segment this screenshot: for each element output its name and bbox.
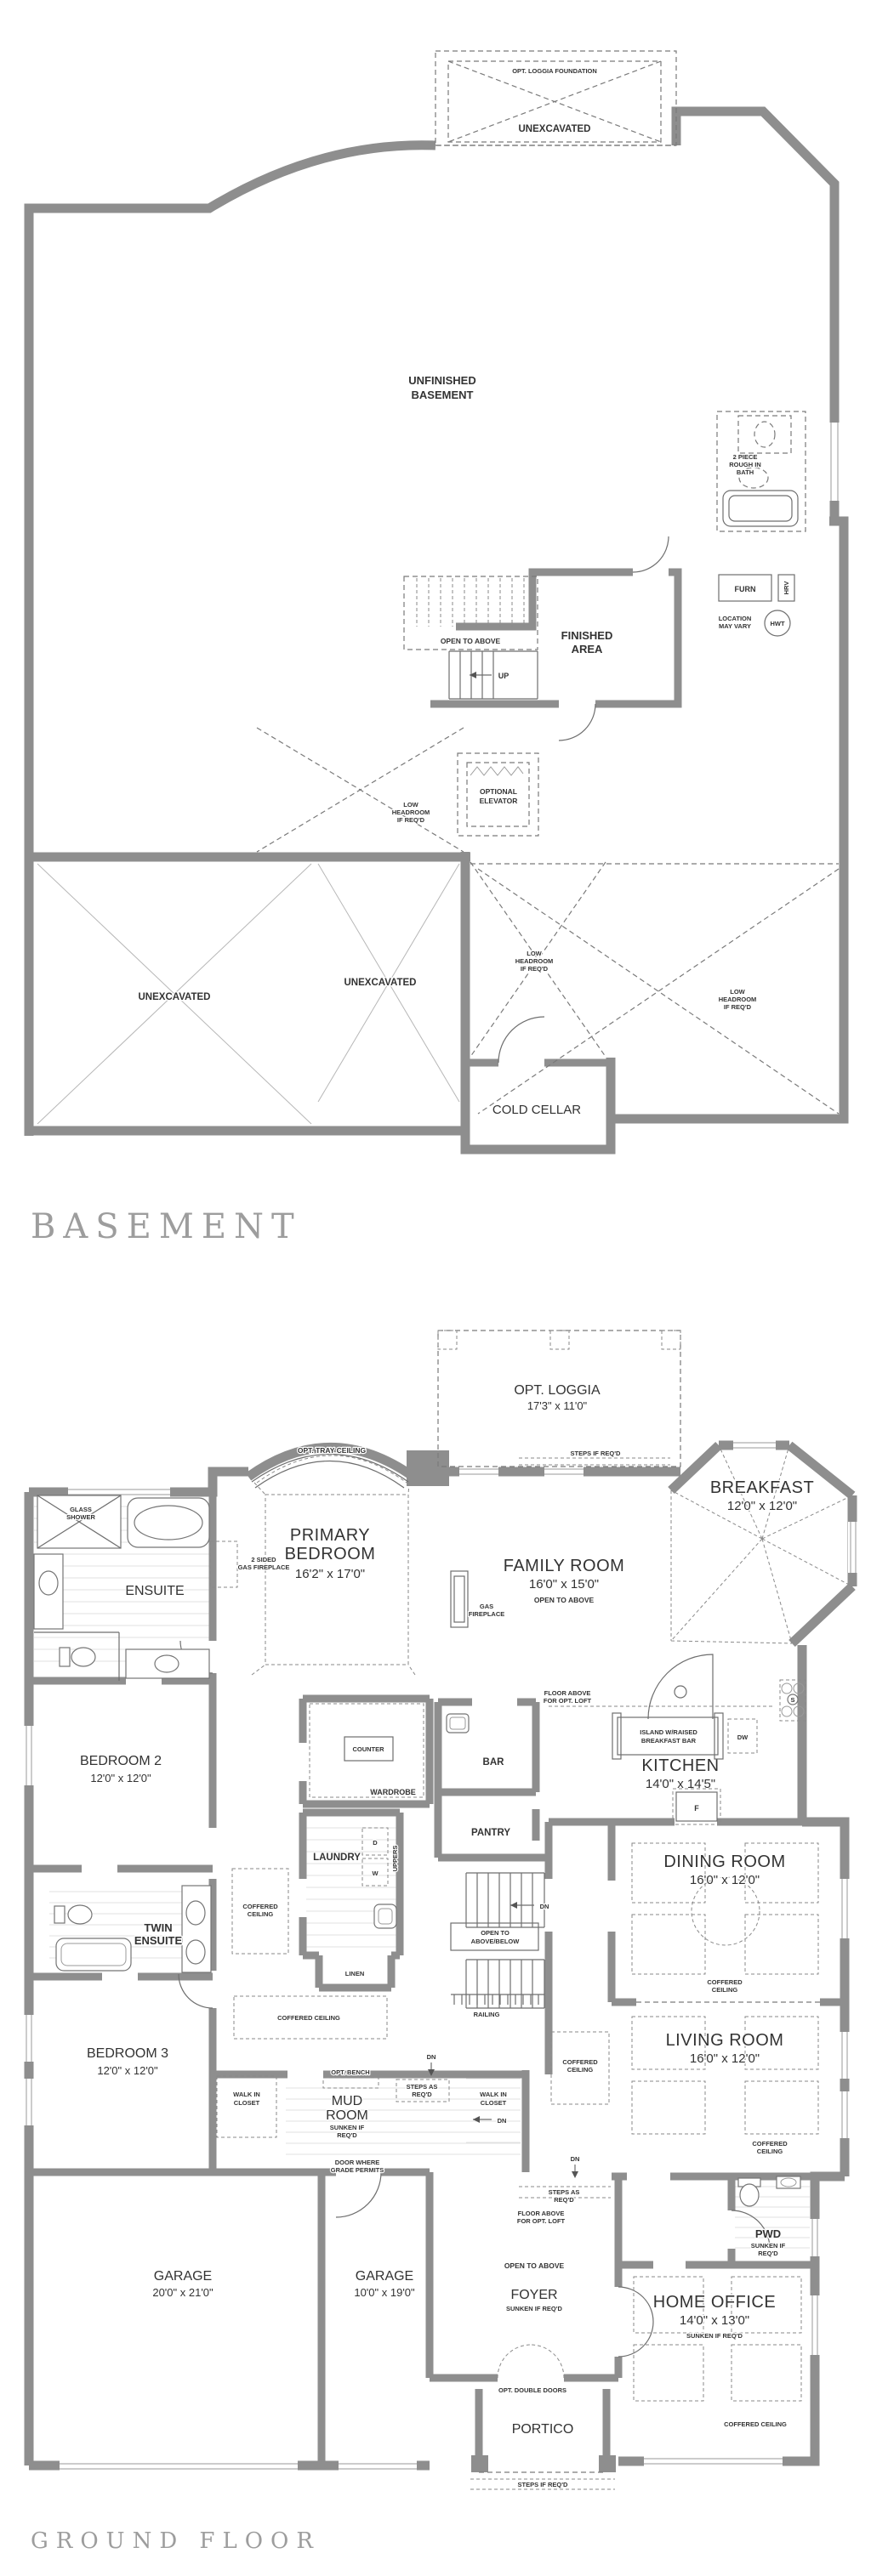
- gf-dining-room: DINING ROOM 16'0" x 12'0" COFFERED CEILI…: [632, 1843, 818, 1994]
- svg-text:CLOSET: CLOSET: [481, 2099, 507, 2107]
- basement-cold-cellar: COLD CELLAR: [492, 1017, 581, 1117]
- basement-plan: OPT. LOGGIA FOUNDATION UNEXCAVATED UNFIN…: [0, 0, 871, 1284]
- label-family-room: FAMILY ROOM: [504, 1557, 625, 1575]
- svg-text:COFFERED: COFFERED: [707, 1978, 743, 1986]
- svg-text:10'0" x 19'0": 10'0" x 19'0": [354, 2286, 415, 2299]
- svg-text:ENSUITE: ENSUITE: [134, 1934, 183, 1947]
- label-pantry: PANTRY: [471, 1828, 510, 1838]
- basement-mechanical: FURN HRV HWT LOCATION MAY VARY: [719, 575, 794, 636]
- svg-text:OPEN TO: OPEN TO: [481, 1929, 510, 1937]
- label-loggia-foundation: OPT. LOGGIA FOUNDATION: [512, 67, 597, 75]
- svg-text:STEPS AS: STEPS AS: [407, 2083, 438, 2091]
- svg-text:WALK IN: WALK IN: [480, 2091, 507, 2098]
- svg-text:GAS FIREPLACE: GAS FIREPLACE: [238, 1563, 290, 1571]
- label-dn: DN: [540, 1903, 549, 1910]
- svg-text:ROOM: ROOM: [326, 2108, 368, 2123]
- svg-text:W: W: [372, 1870, 379, 1877]
- gf-bar-pantry: BAR PANTRY: [447, 1714, 510, 1838]
- label-foyer: FOYER: [510, 2288, 557, 2302]
- gf-twin-ensuite: TWIN ENSUITE: [54, 1886, 211, 1972]
- label-wardrobe: WARDROBE: [370, 1788, 416, 1796]
- label-tray-ceiling: OPT. TRAY CEILING: [298, 1446, 367, 1455]
- svg-text:ROUGH IN: ROUGH IN: [729, 461, 761, 468]
- label-open-to-above: OPEN TO ABOVE: [441, 637, 501, 645]
- gf-loggia: OPT. LOGGIA 17'3" x 11'0" STEPS IF REQ'D: [438, 1331, 680, 1467]
- svg-text:ELEVATOR: ELEVATOR: [480, 797, 518, 805]
- basement-stairs: OPEN TO ABOVE UP: [404, 576, 538, 699]
- label-bar: BAR: [483, 1757, 505, 1767]
- svg-text:FLOOR ABOVE: FLOOR ABOVE: [518, 2210, 565, 2217]
- svg-text:IF REQ'D: IF REQ'D: [397, 816, 425, 824]
- svg-text:SUNKEN IF: SUNKEN IF: [330, 2124, 365, 2131]
- label-dishwasher: DW: [737, 1733, 749, 1741]
- svg-text:ABOVE/BELOW: ABOVE/BELOW: [471, 1938, 521, 1945]
- ground-floor-title: GROUND FLOOR: [31, 2528, 321, 2554]
- svg-text:FOR OPT. LOFT: FOR OPT. LOFT: [544, 1697, 592, 1705]
- svg-text:REQ'D: REQ'D: [412, 2091, 432, 2098]
- gf-home-office: HOME OFFICE 14'0" x 13'0" SUNKEN IF REQ'…: [634, 2277, 801, 2428]
- gf-hall-coffered: COFFERED CEILING COFFERED CEILING COFFER…: [232, 1869, 609, 2104]
- svg-text:GRADE PERMITS: GRADE PERMITS: [331, 2166, 384, 2174]
- svg-text:TWIN: TWIN: [144, 1921, 172, 1934]
- label-fridge: F: [694, 1804, 699, 1813]
- svg-text:REQ'D: REQ'D: [337, 2131, 357, 2139]
- svg-text:12'0" x 12'0": 12'0" x 12'0": [727, 1499, 797, 1513]
- svg-text:16'0" x 15'0": 16'0" x 15'0": [529, 1577, 599, 1592]
- basement-rough-in-bath: 2 PIECE ROUGH IN BATH: [717, 411, 806, 531]
- svg-text:UPPERS: UPPERS: [391, 1846, 399, 1872]
- gf-foyer: OPEN TO ABOVE FOYER SUNKEN IF REQ'D DN S…: [504, 2155, 611, 2312]
- label-furnace: FURN: [735, 585, 756, 593]
- svg-text:16'2" x 17'0": 16'2" x 17'0": [295, 1567, 365, 1581]
- svg-text:GAS: GAS: [480, 1603, 493, 1610]
- svg-text:HEADROOM: HEADROOM: [719, 996, 757, 1003]
- label-opt-loggia: OPT. LOGGIA: [514, 1383, 601, 1398]
- svg-text:SUNKEN IF REQ'D: SUNKEN IF REQ'D: [506, 2305, 563, 2312]
- svg-text:FINISHED: FINISHED: [561, 629, 613, 642]
- svg-text:AREA: AREA: [572, 643, 603, 655]
- svg-text:COFFERED CEILING: COFFERED CEILING: [277, 2014, 340, 2022]
- svg-text:OPEN TO ABOVE: OPEN TO ABOVE: [504, 2261, 565, 2270]
- svg-text:2 PIECE: 2 PIECE: [733, 453, 758, 461]
- basement-elevator: OPTIONAL ELEVATOR: [458, 753, 538, 836]
- label-portico: PORTICO: [512, 2422, 574, 2437]
- label-opt-double-doors: OPT. DOUBLE DOORS: [498, 2386, 566, 2394]
- svg-text:PRIMARY: PRIMARY: [290, 1526, 370, 1545]
- svg-text:FLOOR ABOVE: FLOOR ABOVE: [544, 1689, 591, 1697]
- svg-text:MUD: MUD: [332, 2094, 362, 2108]
- label-opt-bench: OPT. BENCH: [331, 2068, 369, 2076]
- label-garage2: GARAGE: [356, 2269, 413, 2284]
- label-cold-cellar: COLD CELLAR: [492, 1103, 581, 1117]
- label-stove: S: [790, 1696, 794, 1704]
- svg-text:GLASS: GLASS: [70, 1506, 92, 1513]
- svg-text:DN: DN: [427, 2053, 436, 2061]
- svg-text:BREAKFAST BAR: BREAKFAST BAR: [641, 1737, 697, 1745]
- svg-text:2 SIDED: 2 SIDED: [251, 1556, 276, 1563]
- gf-kitchen: KITCHEN 14'0" x 14'5" ISLAND W/RAISED BR…: [544, 1654, 806, 1824]
- basement-loggia-foundation: OPT. LOGGIA FOUNDATION UNEXCAVATED: [435, 51, 676, 145]
- svg-text:16'0" x 12'0": 16'0" x 12'0": [690, 1873, 760, 1887]
- gf-wardrobe: COUNTER WARDROBE: [310, 1704, 424, 1797]
- basement-unexcavated-garage: UNEXCAVATED UNEXCAVATED: [37, 864, 459, 1124]
- svg-text:COFFERED: COFFERED: [752, 2140, 788, 2148]
- label-dining: DINING ROOM: [663, 1853, 785, 1871]
- gf-portico: OPT. DOUBLE DOORS PORTICO STEPS IF REQ'D: [470, 2386, 615, 2489]
- svg-text:LOW: LOW: [403, 801, 418, 809]
- floorplan-sheet: OPT. LOGGIA FOUNDATION UNEXCAVATED UNFIN…: [0, 0, 871, 2576]
- svg-text:STEPS IF REQ'D: STEPS IF REQ'D: [518, 2481, 568, 2488]
- svg-text:BATH: BATH: [737, 468, 754, 476]
- svg-text:SUNKEN IF REQ'D: SUNKEN IF REQ'D: [686, 2332, 743, 2340]
- svg-text:WALK IN: WALK IN: [233, 2091, 260, 2098]
- svg-text:CLOSET: CLOSET: [234, 2099, 260, 2107]
- svg-text:REQ'D: REQ'D: [758, 2250, 778, 2257]
- gf-family-room: FAMILY ROOM 16'0" x 15'0" OPEN TO ABOVE …: [451, 1557, 624, 1627]
- svg-text:LOW: LOW: [527, 950, 542, 957]
- label-bedroom3: BEDROOM 3: [87, 2046, 168, 2061]
- svg-text:CEILING: CEILING: [248, 1910, 274, 1918]
- svg-text:DN: DN: [498, 2117, 507, 2125]
- gf-bedroom2: BEDROOM 2 12'0" x 12'0": [80, 1754, 162, 1784]
- label-laundry: LAUNDRY: [313, 1853, 361, 1863]
- svg-text:DOOR WHERE: DOOR WHERE: [335, 2159, 380, 2166]
- svg-text:UNEXCAVATED: UNEXCAVATED: [139, 992, 211, 1002]
- svg-text:COFFERED CEILING: COFFERED CEILING: [724, 2420, 787, 2428]
- svg-text:CEILING: CEILING: [757, 2148, 783, 2155]
- label-garage1: GARAGE: [154, 2269, 212, 2284]
- svg-text:UNFINISHED: UNFINISHED: [408, 374, 475, 387]
- gf-garages: GARAGE 20'0" x 21'0" GARAGE 10'0" x 19'0…: [152, 2269, 415, 2299]
- label-kitchen: KITCHEN: [641, 1756, 719, 1775]
- svg-text:STEPS IF REQ'D: STEPS IF REQ'D: [571, 1450, 621, 1457]
- basement-title: BASEMENT: [31, 1207, 302, 1246]
- svg-text:LOCATION: LOCATION: [719, 615, 752, 622]
- label-ensuite: ENSUITE: [125, 1584, 184, 1598]
- gf-bedroom3: BEDROOM 3 12'0" x 12'0": [87, 2046, 168, 2077]
- svg-text:CEILING: CEILING: [567, 2066, 594, 2074]
- svg-text:UNEXCAVATED: UNEXCAVATED: [344, 978, 417, 988]
- svg-text:HEADROOM: HEADROOM: [515, 957, 554, 965]
- svg-text:LOW: LOW: [730, 988, 745, 996]
- svg-text:OPTIONAL: OPTIONAL: [480, 787, 517, 796]
- gf-living-room: LIVING ROOM 16'0" x 12'0" COFFERED CEILI…: [632, 2017, 818, 2155]
- svg-text:COFFERED: COFFERED: [562, 2058, 598, 2066]
- svg-text:BASEMENT: BASEMENT: [412, 389, 474, 401]
- label-living: LIVING ROOM: [666, 2031, 784, 2050]
- gf-primary-bedroom: OPT. TRAY CEILING PRIMARY BEDROOM 16'2" …: [210, 1446, 415, 1675]
- svg-text:SUNKEN IF: SUNKEN IF: [751, 2242, 786, 2250]
- svg-text:CEILING: CEILING: [712, 1986, 738, 1994]
- basement-unfinished-label: UNFINISHED BASEMENT: [408, 374, 475, 401]
- svg-text:FIREPLACE: FIREPLACE: [469, 1610, 505, 1618]
- svg-text:17'3" x 11'0": 17'3" x 11'0": [527, 1399, 588, 1412]
- gf-stairs: OPEN TO ABOVE/BELOW DN RAILING: [451, 1873, 549, 2018]
- svg-text:REQ'D: REQ'D: [554, 2196, 574, 2204]
- svg-text:BEDROOM: BEDROOM: [285, 1545, 376, 1563]
- label-pwd: PWD: [755, 2227, 781, 2240]
- svg-text:14'0" x 13'0": 14'0" x 13'0": [680, 2313, 749, 2328]
- label-counter: COUNTER: [352, 1745, 384, 1753]
- svg-text:ISLAND W/RAISED: ISLAND W/RAISED: [640, 1728, 697, 1736]
- basement-low-headroom-areas: LOW HEADROOM IF REQ'D LOW HEADROOM IF RE…: [257, 728, 839, 1114]
- svg-text:MAY VARY: MAY VARY: [719, 622, 751, 630]
- label-bedroom2: BEDROOM 2: [80, 1754, 162, 1768]
- label-breakfast: BREAKFAST: [710, 1478, 814, 1497]
- svg-text:IF REQ'D: IF REQ'D: [521, 965, 549, 973]
- svg-text:COFFERED: COFFERED: [242, 1903, 278, 1910]
- svg-text:STEPS AS: STEPS AS: [549, 2188, 580, 2196]
- svg-text:IF REQ'D: IF REQ'D: [724, 1003, 752, 1011]
- svg-text:HEADROOM: HEADROOM: [392, 809, 430, 816]
- label-up: UP: [498, 672, 510, 680]
- svg-text:D: D: [373, 1839, 378, 1847]
- label-railing: RAILING: [474, 2011, 500, 2018]
- svg-text:20'0" x 21'0": 20'0" x 21'0": [152, 2286, 213, 2299]
- gf-ensuite: GLASS SHOWER ENSUITE: [34, 1495, 209, 1681]
- svg-text:12'0" x 12'0": 12'0" x 12'0": [97, 2064, 158, 2077]
- label-unexcavated-top: UNEXCAVATED: [519, 124, 591, 134]
- label-home-office: HOME OFFICE: [653, 2293, 776, 2312]
- label-hwt: HWT: [770, 620, 784, 627]
- ground-floor-plan: OPT. LOGGIA 17'3" x 11'0" STEPS IF REQ'D…: [0, 1284, 871, 2576]
- label-linen: LINEN: [345, 1970, 365, 1977]
- svg-text:SHOWER: SHOWER: [66, 1513, 95, 1521]
- svg-text:16'0" x 12'0": 16'0" x 12'0": [690, 2051, 760, 2066]
- gf-laundry: LAUNDRY D W UPPERS LINEN: [313, 1828, 399, 1977]
- label-hrv: HRV: [783, 582, 790, 595]
- svg-text:OPEN TO ABOVE: OPEN TO ABOVE: [534, 1596, 595, 1604]
- svg-text:12'0" x 12'0": 12'0" x 12'0": [90, 1772, 151, 1784]
- svg-text:DN: DN: [571, 2155, 580, 2163]
- svg-text:FOR OPT. LOFT: FOR OPT. LOFT: [517, 2217, 566, 2225]
